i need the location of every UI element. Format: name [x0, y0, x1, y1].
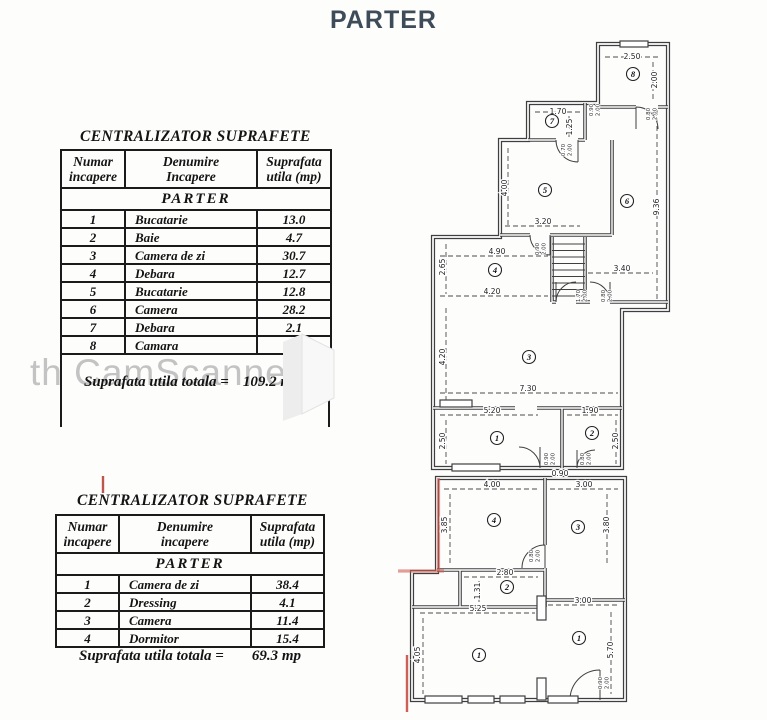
door-size-label: 0.702.00: [561, 143, 574, 156]
room-number-badge: 2: [586, 427, 599, 440]
room-number-badge: 7: [546, 115, 559, 128]
door-size-label: 0.902.00: [544, 452, 557, 465]
room-number-badge: 4: [489, 264, 502, 277]
door-width-label: 0.80: [646, 107, 652, 120]
building2-outer-walls: [412, 478, 625, 700]
room-number-badge: 3: [572, 521, 585, 534]
door-height-label: 2.00: [653, 107, 659, 120]
scanned-document-page: PARTER th CamScanner CENTRALIZATOR SUPRA…: [0, 0, 767, 720]
room-number-badge: 8: [627, 68, 640, 81]
door-height-label: 2.00: [587, 452, 593, 465]
dimension-label: 4.90: [489, 247, 506, 256]
door-size-label: 0.902.00: [598, 676, 611, 689]
room-number-text: 4: [491, 515, 496, 525]
door-width-label: 0.80: [580, 452, 586, 465]
room-number-text: 1: [495, 433, 499, 443]
dimension-label: 1.90: [582, 406, 599, 415]
room-number-text: 2: [504, 582, 510, 592]
room-number-text: 3: [526, 352, 532, 362]
room-number-badge: 5: [539, 184, 552, 197]
door-height-label: 2.00: [596, 103, 602, 116]
dimension-label: 4.20: [484, 287, 501, 296]
floor-plan-drawing: 2.502.001.701.254.003.209.363.404.902.65…: [0, 0, 767, 720]
door-height-label: 2.00: [568, 143, 574, 156]
door-size-label: 0.902.00: [535, 242, 548, 255]
dimension-label: 2.50: [611, 432, 620, 449]
dimension-label: 4.00: [500, 179, 509, 196]
dimension-label: 9.36: [652, 198, 661, 215]
room-number-text: 1: [577, 633, 581, 643]
door-width-label: 0.90: [598, 676, 604, 689]
door-width-label: 0.80: [529, 549, 535, 562]
dimension-label: 7.30: [520, 384, 537, 393]
room-number-text: 4: [492, 265, 497, 275]
door-size-label: 0.902.00: [589, 103, 602, 116]
door-height-label: 2.00: [542, 242, 548, 255]
door-size-label: 0.802.00: [580, 452, 593, 465]
door-width-label: 0.90: [535, 242, 541, 255]
dimension-label: 3.85: [440, 516, 449, 533]
room-number-text: 1: [477, 650, 481, 660]
door-size-label: 0.802.00: [601, 289, 614, 302]
dimension-label: 0.90: [552, 469, 569, 478]
dimension-label: 2.50: [624, 52, 641, 61]
dimension-label: 2.00: [650, 71, 659, 88]
door-height-label: 2.00: [605, 676, 611, 689]
door-height-label: 2.00: [608, 289, 614, 302]
staircase: [552, 244, 585, 296]
wall-pillar: [537, 678, 546, 700]
building2-interior-walls: [412, 478, 625, 700]
dimension-label: 3.00: [576, 480, 593, 489]
dimension-label: 4.05: [413, 646, 422, 663]
door-size-label: 0.802.00: [646, 107, 659, 120]
room-number-badge: 6: [621, 195, 634, 208]
room-number-badge: 1: [573, 632, 586, 645]
door-width-label: 0.90: [544, 452, 550, 465]
room-number-badge: 4: [488, 514, 501, 527]
dimension-label: 2.80: [497, 568, 514, 577]
door-width-label: 0.90: [589, 103, 595, 116]
dimension-label: 1.25: [565, 118, 574, 135]
dimension-label: 2.50: [438, 432, 447, 449]
watermark-fold-shape: [283, 334, 334, 421]
dimension-label: 4.00: [484, 480, 501, 489]
red-pen-marks: [103, 476, 444, 712]
dimension-label: 3.00: [575, 596, 592, 605]
dimension-label: 5.20: [484, 406, 501, 415]
dimension-label: 3.20: [535, 217, 552, 226]
door-height-label: 2.00: [551, 452, 557, 465]
room-number-text: 2: [589, 428, 595, 438]
room-number-badge: 2: [501, 581, 514, 594]
door-size-label: 0.802.00: [529, 549, 542, 562]
room-number-badge: 3: [523, 351, 536, 364]
building1-interior-walls: [433, 103, 668, 468]
dimension-label: 4.20: [438, 348, 447, 365]
door-height-label: 2.00: [536, 549, 542, 562]
dimension-label: 5.25: [470, 604, 487, 613]
door-width-label: 1.70: [576, 289, 582, 302]
dimension-label: 2.65: [438, 258, 447, 275]
door-width-label: 0.70: [561, 143, 567, 156]
dimension-label: 1.31: [473, 582, 482, 599]
room-number-badge: 1: [491, 432, 504, 445]
wall-pillar: [537, 596, 546, 620]
dimension-label: 3.40: [614, 264, 631, 273]
door-height-label: 2.00: [583, 289, 589, 302]
room-number-text: 3: [575, 522, 581, 532]
door-width-label: 0.80: [601, 289, 607, 302]
dimension-label: 5.70: [606, 641, 615, 658]
room-number-badge: 1: [473, 649, 486, 662]
door-size-label: 1.702.00: [576, 289, 589, 302]
dimension-label: 3.80: [602, 516, 611, 533]
